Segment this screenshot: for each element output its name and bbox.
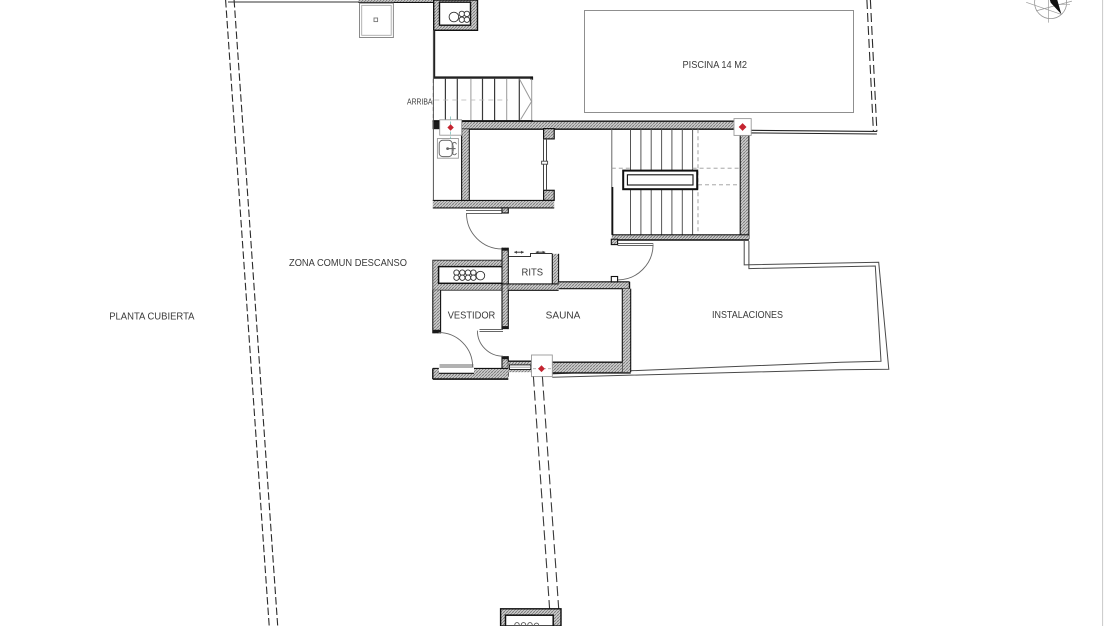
svg-text:ZONA COMUN DESCANSO: ZONA COMUN DESCANSO [289, 258, 407, 269]
svg-text:PLANTA CUBIERTA: PLANTA CUBIERTA [109, 312, 195, 323]
svg-text:ARRIBA: ARRIBA [407, 97, 433, 107]
svg-text:PISCINA 14 M2: PISCINA 14 M2 [683, 60, 748, 71]
svg-text:VESTIDOR: VESTIDOR [448, 311, 496, 322]
svg-text:RITS: RITS [522, 268, 544, 279]
svg-text:INSTALACIONES: INSTALACIONES [712, 310, 783, 321]
svg-text:SAUNA: SAUNA [546, 311, 581, 322]
